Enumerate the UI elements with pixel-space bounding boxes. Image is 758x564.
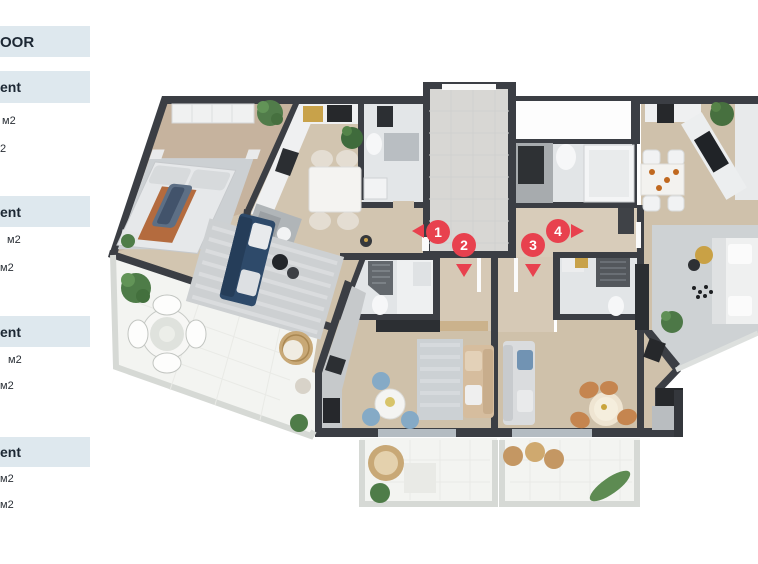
svg-text:4: 4 (554, 223, 562, 239)
svg-text:3: 3 (529, 237, 537, 253)
svg-text:1: 1 (434, 224, 442, 240)
svg-text:2: 2 (460, 237, 468, 253)
